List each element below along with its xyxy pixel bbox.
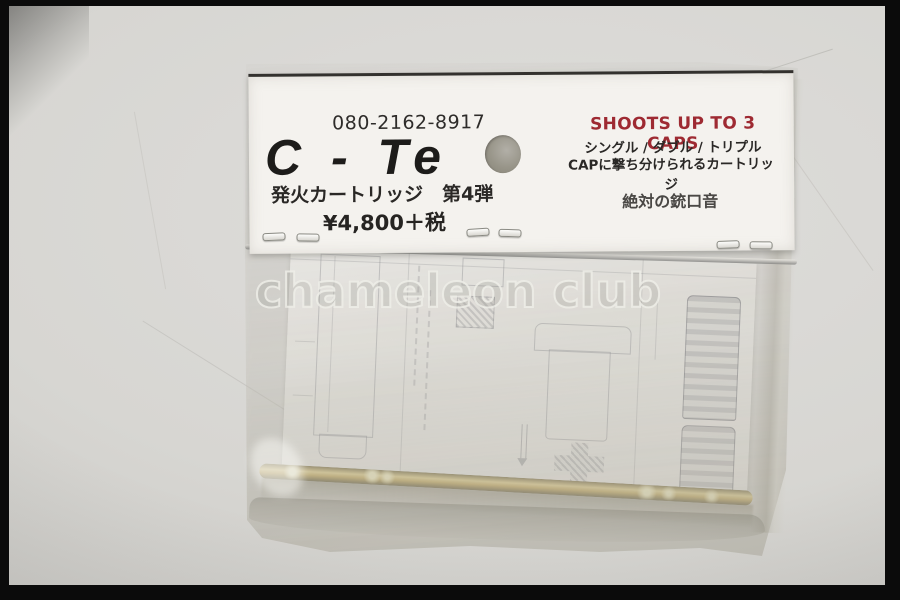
punch-hole xyxy=(485,135,521,173)
staple xyxy=(750,241,773,249)
photo-frame: 080-2162-8917 C - Te 発火カートリッジ 第4弾 ¥4,800… xyxy=(0,0,900,600)
staple xyxy=(716,240,739,249)
scratch-line xyxy=(134,112,166,289)
tagline: 絶対の銃口音 xyxy=(605,188,735,213)
staple xyxy=(262,232,285,241)
photo-surface: 080-2162-8917 C - Te 発火カートリッジ 第4弾 ¥4,800… xyxy=(9,6,885,585)
product-line: 発火カートリッジ 第4弾 xyxy=(267,179,497,208)
watermark-text: chameleon club xyxy=(255,264,661,318)
price-text: ¥4,800＋税 xyxy=(299,206,469,237)
staple xyxy=(498,229,521,238)
staple xyxy=(296,233,319,241)
header-card: 080-2162-8917 C - Te 発火カートリッジ 第4弾 ¥4,800… xyxy=(248,70,794,254)
staple xyxy=(466,228,489,237)
corner-shadow xyxy=(9,6,89,146)
brand-logo-text: C - Te xyxy=(265,127,495,187)
